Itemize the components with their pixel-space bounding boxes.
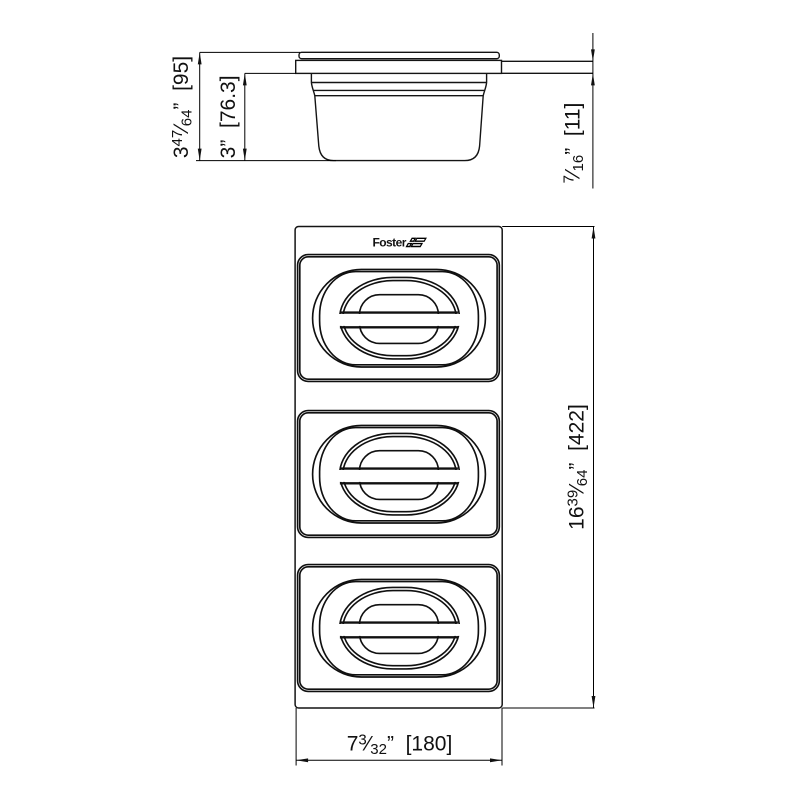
svg-text:Foster: Foster bbox=[373, 236, 407, 250]
svg-text:1639⁄64” [422]: 1639⁄64” [422] bbox=[564, 404, 591, 530]
svg-text:3” [76.3]: 3” [76.3] bbox=[217, 75, 240, 158]
